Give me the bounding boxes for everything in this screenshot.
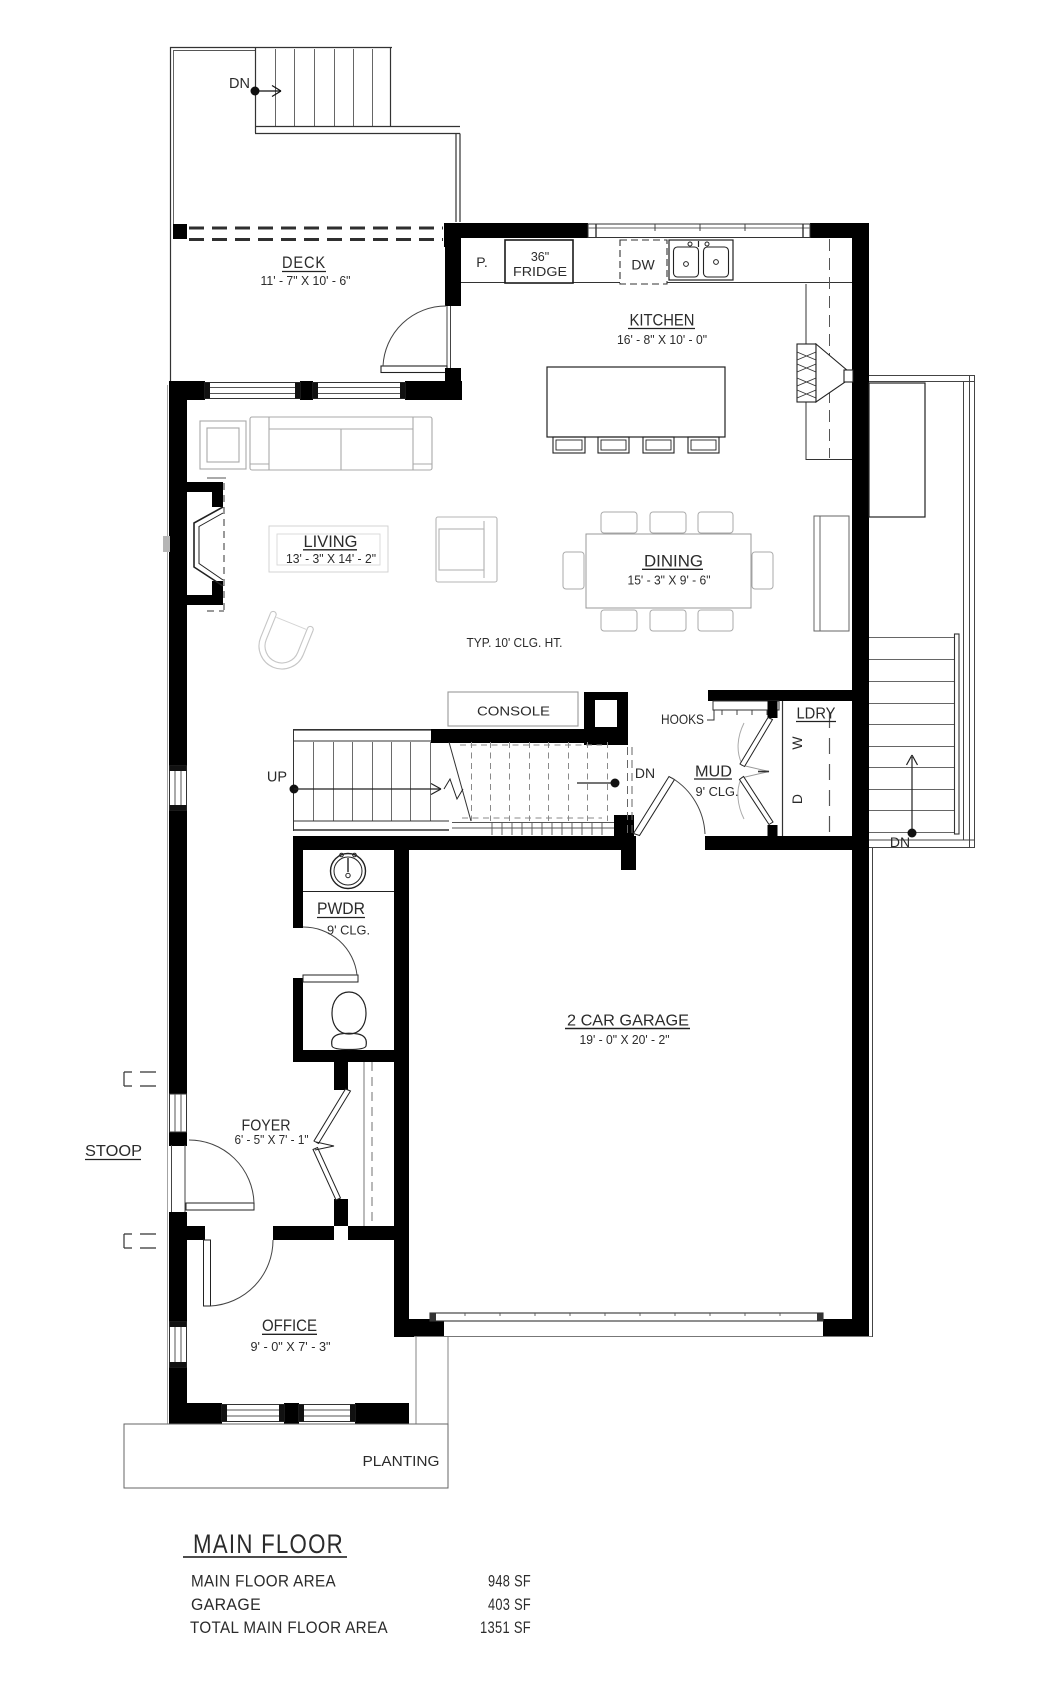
svg-text:16' - 8" X 10' - 0": 16' - 8" X 10' - 0" xyxy=(617,333,707,347)
svg-text:FOYER: FOYER xyxy=(242,1118,291,1135)
svg-text:15' - 3" X 9' - 6": 15' - 3" X 9' - 6" xyxy=(628,574,711,588)
svg-text:36": 36" xyxy=(531,250,549,264)
svg-text:DN: DN xyxy=(229,76,250,92)
svg-text:PWDR: PWDR xyxy=(317,900,365,918)
svg-text:403 SF: 403 SF xyxy=(488,1595,531,1614)
svg-text:13' - 3" X 14' - 2": 13' - 3" X 14' - 2" xyxy=(286,552,376,566)
svg-text:9' CLG.: 9' CLG. xyxy=(696,784,739,799)
svg-text:DECK: DECK xyxy=(282,253,326,272)
svg-text:MAIN FLOOR: MAIN FLOOR xyxy=(193,1529,344,1559)
svg-text:9' CLG.: 9' CLG. xyxy=(327,923,370,938)
svg-text:1351 SF: 1351 SF xyxy=(480,1618,531,1637)
svg-text:FRIDGE: FRIDGE xyxy=(513,265,567,279)
svg-text:6' - 5" X 7' - 1": 6' - 5" X 7' - 1" xyxy=(235,1133,309,1147)
svg-text:LIVING: LIVING xyxy=(304,533,358,551)
svg-text:9' - 0" X 7' - 3": 9' - 0" X 7' - 3" xyxy=(251,1340,331,1354)
svg-text:DW: DW xyxy=(631,257,655,273)
svg-text:DINING: DINING xyxy=(644,553,703,571)
svg-text:STOOP: STOOP xyxy=(85,1143,142,1160)
svg-text:GARAGE: GARAGE xyxy=(191,1595,261,1614)
svg-text:19' - 0" X 20' - 2": 19' - 0" X 20' - 2" xyxy=(580,1033,670,1047)
svg-text:D: D xyxy=(789,794,805,804)
svg-text:948 SF: 948 SF xyxy=(488,1572,531,1591)
svg-text:DN: DN xyxy=(890,834,910,850)
svg-text:UP: UP xyxy=(267,770,287,786)
svg-text:OFFICE: OFFICE xyxy=(262,1317,317,1335)
svg-text:MAIN FLOOR AREA: MAIN FLOOR AREA xyxy=(191,1572,336,1591)
svg-text:DN: DN xyxy=(635,765,655,781)
svg-text:KITCHEN: KITCHEN xyxy=(630,312,695,330)
svg-text:HOOKS: HOOKS xyxy=(661,711,704,727)
svg-text:CONSOLE: CONSOLE xyxy=(477,704,550,719)
svg-text:11' - 7" X 10' - 6": 11' - 7" X 10' - 6" xyxy=(261,274,351,288)
svg-text:LDRY: LDRY xyxy=(797,706,836,723)
svg-text:2 CAR GARAGE: 2 CAR GARAGE xyxy=(567,1013,689,1030)
svg-text:MUD: MUD xyxy=(695,764,732,781)
svg-text:TOTAL MAIN FLOOR AREA: TOTAL MAIN FLOOR AREA xyxy=(190,1618,388,1637)
svg-text:W: W xyxy=(789,736,805,750)
svg-text:P.: P. xyxy=(476,254,487,270)
svg-text:PLANTING: PLANTING xyxy=(363,1454,440,1470)
svg-text:TYP. 10' CLG. HT.: TYP. 10' CLG. HT. xyxy=(467,635,563,650)
